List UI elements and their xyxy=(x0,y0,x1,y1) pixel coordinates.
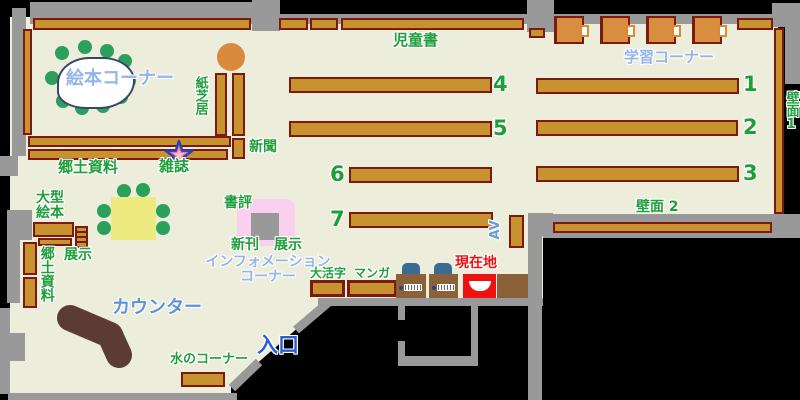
display-stand-center xyxy=(251,213,279,240)
shelf-number-4: 4 xyxy=(493,73,508,95)
wall-segment xyxy=(318,298,543,306)
kamishibai-shelf xyxy=(232,73,245,136)
wall-segment xyxy=(772,3,800,27)
shelf-row-7 xyxy=(349,212,493,228)
shelf-number-2: 2 xyxy=(743,116,758,138)
label-display-left: 展示 xyxy=(64,248,92,263)
local-materials-shelf xyxy=(23,242,37,275)
library-floor-map: 絵本コーナー 紙芝居 新聞 雑誌 郷土資料 大型 絵本 展示 郷土資料 カウンタ… xyxy=(0,0,800,400)
label-book-review: 書評 xyxy=(224,196,252,211)
newspaper-shelf xyxy=(232,138,245,159)
water-corner-shelf xyxy=(181,372,225,387)
shelf-number-1: 1 xyxy=(743,73,758,95)
label-wall-2: 壁面 2 xyxy=(636,200,679,215)
current-location-marker xyxy=(463,274,496,298)
study-carrel xyxy=(646,16,676,44)
study-carrel xyxy=(554,16,584,44)
local-materials-shelf xyxy=(23,277,37,308)
table-chair xyxy=(156,204,170,218)
label-local-materials-top: 郷土資料 xyxy=(58,160,118,176)
pc-station xyxy=(429,274,458,298)
label-av: AV xyxy=(489,220,503,239)
kamishibai-shelf xyxy=(215,73,227,136)
study-carrel xyxy=(692,16,722,44)
table-chair xyxy=(136,183,150,197)
table-chair xyxy=(97,221,111,235)
display-rack xyxy=(75,226,88,248)
label-wall-1: 壁面1 xyxy=(784,91,798,132)
shelf-number-5: 5 xyxy=(493,117,508,139)
shelf-row-6 xyxy=(349,167,492,183)
bookshelf-wall-1 xyxy=(774,28,784,214)
label-water-corner: 水のコーナー xyxy=(170,353,248,367)
label-large-print: 大活字 xyxy=(310,267,346,280)
wall-segment xyxy=(528,236,542,400)
wall-segment xyxy=(0,156,18,176)
mouse-icon xyxy=(399,286,403,290)
bookshelf-small xyxy=(529,28,545,38)
label-picture-book-corner: 絵本コーナー xyxy=(66,70,174,89)
current-location-glyph xyxy=(469,281,491,291)
wall-segment xyxy=(7,210,20,303)
wall-pillar xyxy=(252,0,280,31)
label-kamishibai: 紙芝居 xyxy=(193,76,207,115)
shelf-row-1 xyxy=(536,78,739,94)
vestibule-wall xyxy=(398,306,405,320)
shelf-number-7: 7 xyxy=(330,208,345,230)
label-entrance: 入口 xyxy=(257,334,299,356)
vestibule-wall xyxy=(398,356,478,366)
bookshelf-top-right xyxy=(737,18,773,30)
table-chair xyxy=(117,184,131,198)
label-newspaper: 新聞 xyxy=(249,140,277,155)
wall-segment xyxy=(8,393,237,400)
large-picture-book-shelf xyxy=(33,222,74,237)
label-display-center: 展示 xyxy=(274,238,302,253)
shelf-row-5 xyxy=(289,121,492,137)
manga-shelf xyxy=(347,280,397,297)
shelf-row-3 xyxy=(536,166,739,182)
reading-seat xyxy=(55,46,69,60)
large-picture-book-shelf xyxy=(38,238,72,246)
table-chair xyxy=(156,221,170,235)
mouse-icon xyxy=(432,286,436,290)
av-shelf xyxy=(509,215,524,248)
bookshelf-top xyxy=(341,18,524,30)
tree-circle xyxy=(217,43,245,71)
shelf-number-6: 6 xyxy=(330,163,345,185)
study-carrel xyxy=(600,16,630,44)
bookshelf-top xyxy=(279,18,308,30)
label-current-location: 現在地 xyxy=(455,256,497,271)
carrel-chair xyxy=(672,25,681,37)
reading-seat xyxy=(78,40,92,54)
shelf-row-4 xyxy=(289,77,492,93)
carrel-chair xyxy=(626,25,635,37)
bookshelf-wall-2 xyxy=(553,222,772,233)
carrel-chair xyxy=(718,25,727,37)
label-large-picture-books: 大型 絵本 xyxy=(36,191,64,220)
label-counter: カウンター xyxy=(112,299,202,318)
keyboard-icon xyxy=(404,284,422,291)
keyboard-icon xyxy=(437,284,455,291)
wall-segment xyxy=(785,27,800,84)
label-line: 絵本 xyxy=(36,206,64,221)
wall-segment xyxy=(0,308,10,394)
label-study-corner: 学習コーナー xyxy=(624,50,714,66)
vestibule-wall xyxy=(471,306,478,366)
label-new-books: 新刊 xyxy=(231,238,259,253)
magazine-shelf xyxy=(28,136,231,147)
bookshelf-left xyxy=(23,29,32,135)
label-local-materials-left: 郷土資料 xyxy=(39,246,54,302)
label-childrens-books: 児童書 xyxy=(393,33,438,49)
reading-table xyxy=(111,197,156,240)
label-manga: マンガ xyxy=(354,267,390,280)
counter-desk xyxy=(497,274,528,298)
label-magazine: 雑誌 xyxy=(159,159,189,175)
shelf-row-2 xyxy=(536,120,738,136)
pc-station xyxy=(396,274,426,298)
bookshelf-top xyxy=(310,18,338,30)
carrel-chair xyxy=(580,25,589,37)
table-chair xyxy=(97,204,111,218)
shelf-number-3: 3 xyxy=(743,162,758,184)
reading-seat xyxy=(100,44,114,58)
bookshelf-top xyxy=(33,18,251,30)
label-line: 大型 xyxy=(36,191,64,206)
